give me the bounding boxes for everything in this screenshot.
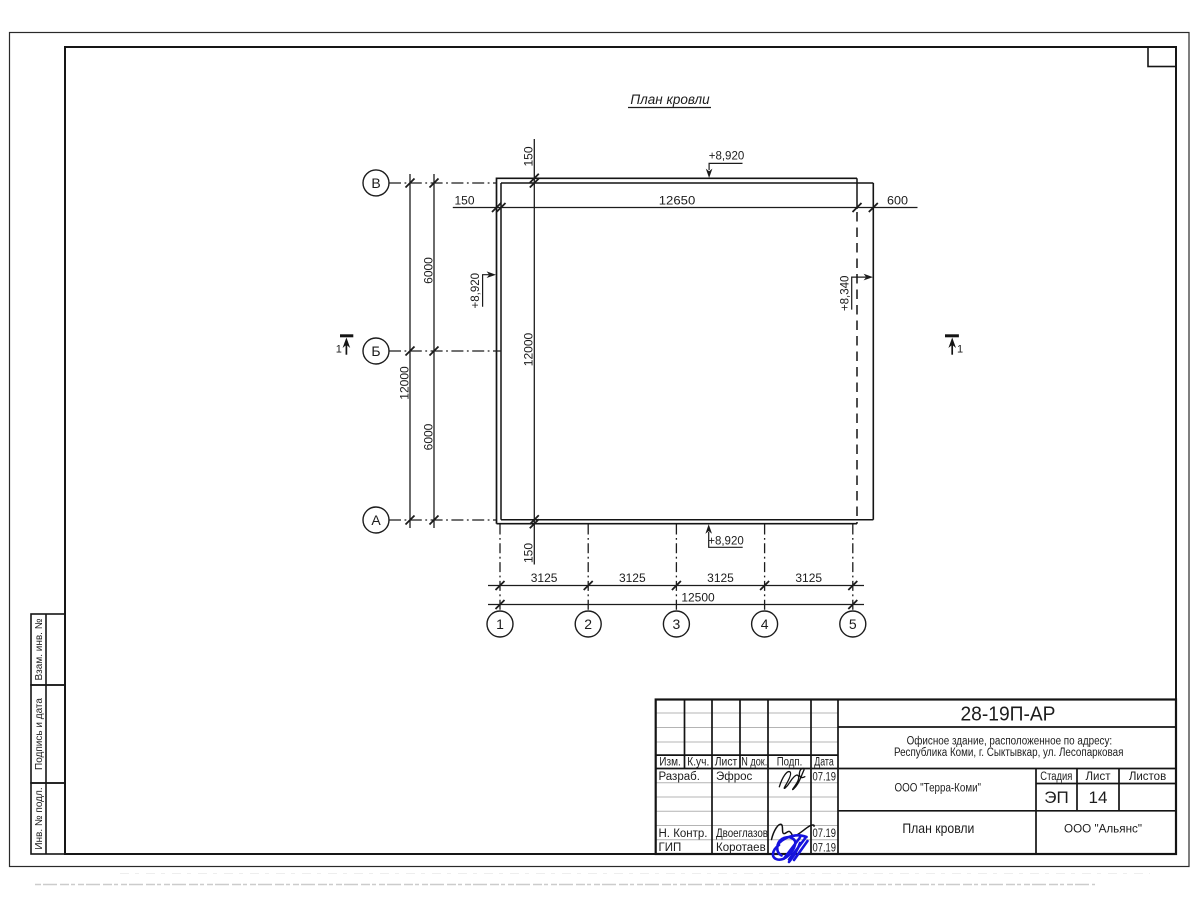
svg-text:ГИП: ГИП <box>659 842 682 854</box>
svg-text:Лист: Лист <box>1086 771 1112 783</box>
svg-text:12000: 12000 <box>397 366 411 400</box>
svg-text:150: 150 <box>454 194 474 208</box>
svg-text:3125: 3125 <box>707 571 734 585</box>
svg-text:2: 2 <box>584 616 592 632</box>
svg-text:Инв. № подл.: Инв. № подл. <box>34 787 45 849</box>
svg-text:6000: 6000 <box>421 423 435 450</box>
svg-text:К.уч.: К.уч. <box>687 757 709 769</box>
svg-text:+8,920: +8,920 <box>708 536 744 548</box>
svg-text:Разраб.: Разраб. <box>659 771 700 783</box>
svg-text:3125: 3125 <box>531 571 558 585</box>
svg-text:А: А <box>371 512 381 528</box>
svg-text:ООО "Терра-Коми": ООО "Терра-Коми" <box>895 781 982 795</box>
svg-text:14: 14 <box>1089 788 1108 807</box>
svg-text:ЭП: ЭП <box>1044 788 1068 807</box>
svg-text:1: 1 <box>336 344 342 356</box>
svg-text:1: 1 <box>496 616 504 632</box>
svg-text:План кровли: План кровли <box>902 820 974 836</box>
svg-text:6000: 6000 <box>421 257 435 284</box>
svg-text:150: 150 <box>522 146 536 166</box>
svg-text:Эфрос: Эфрос <box>716 771 753 783</box>
svg-text:3125: 3125 <box>619 571 646 585</box>
svg-text:12650: 12650 <box>659 194 696 208</box>
svg-text:Дата: Дата <box>814 757 834 769</box>
svg-text:150: 150 <box>522 543 536 563</box>
svg-text:3125: 3125 <box>795 571 822 585</box>
svg-text:4: 4 <box>761 616 769 632</box>
svg-text:12500: 12500 <box>681 591 715 605</box>
svg-text:ООО "Альянс": ООО "Альянс" <box>1064 822 1142 836</box>
svg-text:N док.: N док. <box>741 757 767 769</box>
svg-text:+8,340: +8,340 <box>840 276 852 312</box>
svg-text:1: 1 <box>957 344 963 356</box>
svg-text:Стадия: Стадия <box>1040 771 1072 783</box>
svg-text:+8,920: +8,920 <box>709 151 745 163</box>
svg-text:+8,920: +8,920 <box>470 273 482 309</box>
svg-text:07.19: 07.19 <box>813 771 837 783</box>
svg-text:Н. Контр.: Н. Контр. <box>659 828 708 840</box>
svg-text:3: 3 <box>673 616 681 632</box>
svg-text:07.19: 07.19 <box>813 843 837 855</box>
svg-text:В: В <box>371 175 380 191</box>
svg-text:12000: 12000 <box>522 332 536 366</box>
svg-text:Б: Б <box>371 343 380 359</box>
svg-text:Листов: Листов <box>1129 771 1166 783</box>
svg-text:Подпись и дата: Подпись и дата <box>34 698 45 770</box>
svg-text:Республика Коми, г. Сыктывкар,: Республика Коми, г. Сыктывкар, ул. Лесоп… <box>894 747 1124 759</box>
svg-text:Подп.: Подп. <box>777 757 803 769</box>
svg-text:Взам. инв. №: Взам. инв. № <box>34 618 45 680</box>
svg-text:План кровли: План кровли <box>630 92 710 107</box>
svg-text:Изм.: Изм. <box>659 757 681 769</box>
svg-text:07.19: 07.19 <box>813 828 837 840</box>
svg-text:28-19П-АР: 28-19П-АР <box>961 703 1056 726</box>
svg-text:Офисное здание, расположенное: Офисное здание, расположенное по адресу: <box>907 736 1113 748</box>
svg-text:Двоеглазов: Двоеглазов <box>716 828 768 840</box>
svg-text:Коротаев: Коротаев <box>716 842 766 854</box>
svg-text:Лист: Лист <box>715 757 738 769</box>
svg-text:600: 600 <box>887 194 908 208</box>
svg-text:5: 5 <box>849 616 857 632</box>
